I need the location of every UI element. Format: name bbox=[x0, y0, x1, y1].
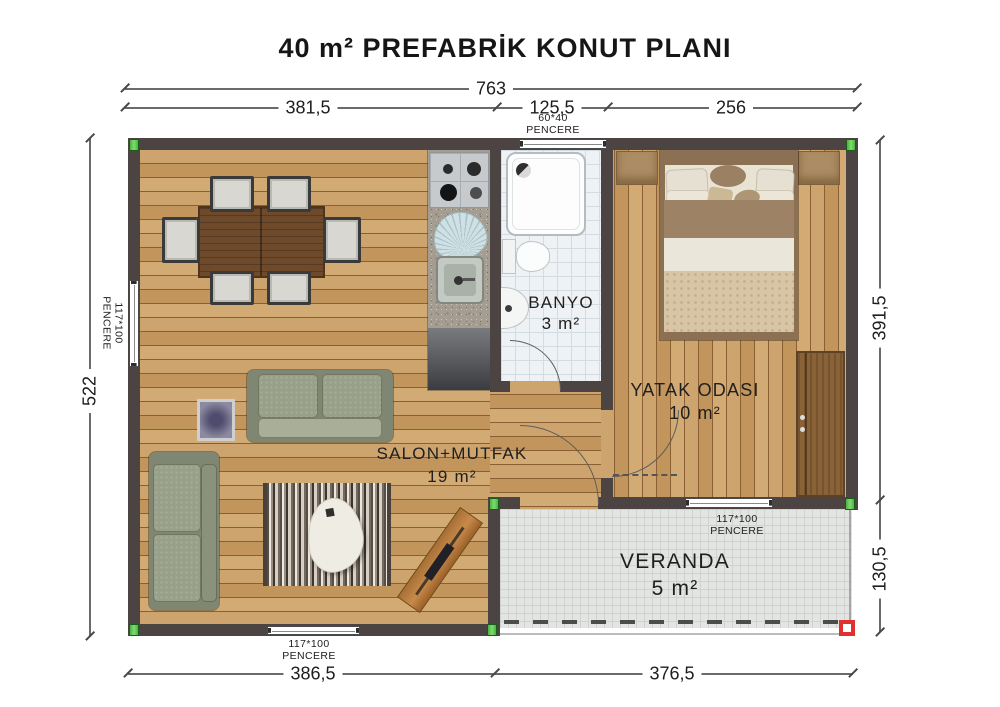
window-label-left: 117*100 PENCERE bbox=[101, 296, 124, 350]
corner-marker-red bbox=[839, 620, 855, 636]
dim-label-top-left: 381,5 bbox=[278, 98, 337, 119]
sofa-cushion bbox=[153, 534, 201, 602]
corner-marker-green bbox=[129, 624, 139, 636]
wardrobe-door-line bbox=[805, 353, 807, 495]
page-title: 40 m² PREFABRİK KONUT PLANI bbox=[278, 33, 731, 64]
toilet-bowl bbox=[516, 241, 550, 272]
dining-chair bbox=[267, 271, 311, 305]
bedroom-door-leaf bbox=[613, 474, 677, 476]
shower-drain bbox=[516, 163, 531, 178]
dining-chair bbox=[323, 217, 361, 263]
stove-burner bbox=[440, 184, 457, 201]
wardrobe bbox=[796, 351, 845, 497]
room-area: 3 m² bbox=[528, 313, 594, 334]
room-label-banyo: BANYO 3 m² bbox=[528, 292, 594, 334]
bed-footboard bbox=[660, 332, 798, 340]
bed-quilt bbox=[664, 271, 794, 332]
wall-bedroom-west-b bbox=[601, 478, 613, 509]
room-area: 5 m² bbox=[620, 575, 730, 602]
wall-veranda-west bbox=[488, 497, 500, 636]
toilet-tank bbox=[502, 239, 516, 274]
sofa-cushion bbox=[153, 464, 201, 532]
stove-burner bbox=[443, 164, 453, 174]
dim-label-right-upper: 391,5 bbox=[870, 288, 891, 347]
window-word: PENCERE bbox=[526, 125, 580, 137]
window-label-top: 60*40 PENCERE bbox=[526, 113, 580, 136]
window-size: 117*100 bbox=[282, 639, 336, 651]
bed-blanket bbox=[664, 200, 794, 238]
room-name: VERANDA bbox=[620, 548, 730, 575]
room-area: 10 m² bbox=[630, 402, 759, 425]
wall-east bbox=[846, 138, 858, 510]
dining-table bbox=[200, 208, 323, 276]
sofa-cushion bbox=[322, 374, 382, 418]
room-label-salon: SALON+MUTFAK 19 m² bbox=[377, 442, 528, 488]
kitchen-appliance bbox=[428, 328, 490, 390]
bed-sheet bbox=[664, 238, 794, 271]
corner-marker-green bbox=[487, 624, 497, 636]
dining-chair bbox=[210, 271, 254, 305]
veranda-right-edge bbox=[849, 509, 851, 635]
dining-chair bbox=[162, 217, 200, 263]
bed-headboard bbox=[660, 150, 798, 165]
window-salon-south bbox=[267, 626, 360, 635]
room-label-yatak: YATAK ODASI 10 m² bbox=[630, 379, 759, 425]
double-bed bbox=[660, 150, 798, 340]
shower-tray bbox=[506, 152, 586, 236]
coffee-table-detail bbox=[325, 508, 334, 517]
window-word: PENCERE bbox=[101, 296, 113, 350]
window-word: PENCERE bbox=[282, 651, 336, 663]
window-size: 60*40 bbox=[526, 113, 580, 125]
window-label-bottom: 117*100 PENCERE bbox=[282, 639, 336, 662]
veranda-open-edge-dashed bbox=[504, 620, 840, 624]
dining-chair bbox=[210, 176, 254, 212]
nightstand-right bbox=[798, 151, 840, 185]
window-size: 117*100 bbox=[112, 296, 124, 350]
basin-faucet bbox=[505, 305, 512, 312]
sink-drain bbox=[454, 276, 463, 285]
stove-burner bbox=[470, 187, 482, 199]
dim-label-top-right: 256 bbox=[709, 98, 753, 119]
sofa-seat bbox=[258, 418, 382, 438]
sofa-backrest bbox=[201, 464, 217, 602]
dim-label-right-lower: 130,5 bbox=[870, 539, 891, 598]
stove-burner bbox=[467, 162, 481, 176]
floor-plan-page: 40 m² PREFABRİK KONUT PLANI 763 381,5 12… bbox=[0, 0, 1000, 707]
corner-marker-green bbox=[846, 139, 856, 151]
dim-label-left-total: 522 bbox=[80, 369, 101, 413]
wall-bathroom-west bbox=[490, 138, 501, 392]
wardrobe-handle bbox=[800, 415, 805, 420]
wall-bathroom-south-a bbox=[490, 381, 510, 392]
window-word: PENCERE bbox=[710, 526, 764, 538]
dim-label-bottom-left: 386,5 bbox=[283, 664, 342, 685]
window-bedroom-veranda bbox=[685, 498, 773, 508]
room-name: YATAK ODASI bbox=[630, 379, 759, 402]
wardrobe-handle bbox=[800, 427, 805, 432]
corner-marker-green bbox=[129, 139, 139, 151]
wall-west bbox=[128, 138, 140, 636]
table-seam bbox=[260, 208, 262, 276]
veranda-bottom-edge bbox=[500, 633, 852, 635]
kitchen-sink bbox=[436, 256, 484, 304]
nightstand-left bbox=[616, 151, 658, 185]
room-name: BANYO bbox=[528, 292, 594, 313]
sofa-large bbox=[247, 370, 393, 442]
sofa-cushion bbox=[258, 374, 318, 418]
room-name: SALON+MUTFAK bbox=[377, 442, 528, 465]
side-table bbox=[197, 399, 235, 441]
room-area: 19 m² bbox=[377, 465, 528, 488]
window-label-veranda: 117*100 PENCERE bbox=[710, 514, 764, 537]
window-bathroom-north bbox=[519, 139, 607, 149]
sink-faucet bbox=[463, 278, 475, 281]
room-label-veranda: VERANDA 5 m² bbox=[620, 548, 730, 602]
sofa-small bbox=[149, 452, 219, 610]
dim-label-top-total: 763 bbox=[469, 79, 513, 100]
dining-chair bbox=[267, 176, 311, 212]
stove bbox=[429, 152, 489, 208]
corner-marker-green bbox=[489, 498, 499, 510]
dim-label-bottom-right: 376,5 bbox=[642, 664, 701, 685]
window-size: 117*100 bbox=[710, 514, 764, 526]
window-salon-west bbox=[129, 280, 139, 367]
corner-marker-green bbox=[845, 498, 855, 510]
wall-bedroom-west-a bbox=[601, 138, 613, 410]
bed-pillow-brown bbox=[710, 165, 746, 187]
